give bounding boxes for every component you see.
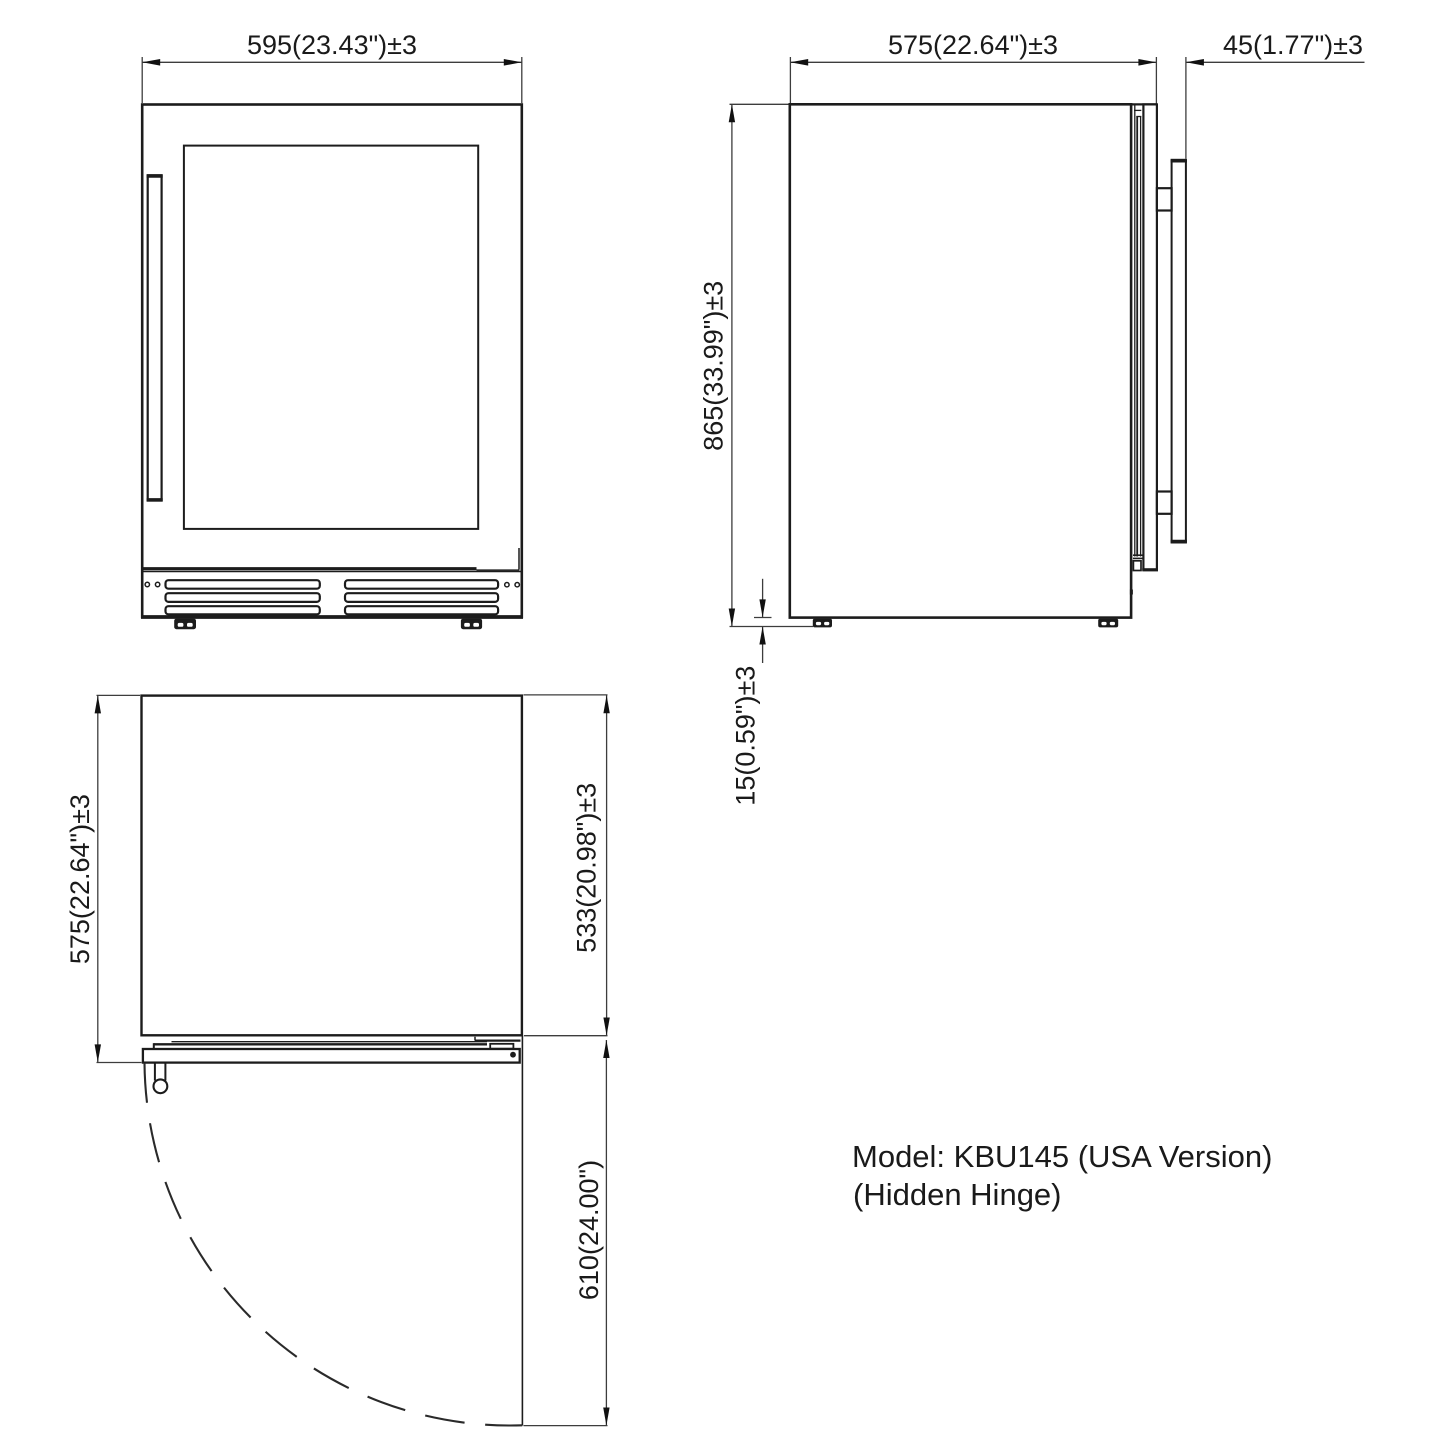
svg-text:533(20.98")±3: 533(20.98")±3 <box>572 783 602 953</box>
svg-text:865(33.99")±3: 865(33.99")±3 <box>699 281 729 451</box>
svg-text:45(1.77")±3: 45(1.77")±3 <box>1223 30 1363 60</box>
svg-text:595(23.43")±3: 595(23.43")±3 <box>247 30 417 60</box>
svg-text:610(24.00"): 610(24.00") <box>574 1160 604 1300</box>
svg-text:575(22.64")±3: 575(22.64")±3 <box>65 794 95 964</box>
svg-text:Model: KBU145 (USA Version): Model: KBU145 (USA Version) <box>852 1139 1272 1174</box>
svg-text:575(22.64")±3: 575(22.64")±3 <box>888 30 1058 60</box>
svg-text:15(0.59")±3: 15(0.59")±3 <box>730 666 760 806</box>
svg-text:(Hidden Hinge): (Hidden Hinge) <box>853 1177 1062 1212</box>
